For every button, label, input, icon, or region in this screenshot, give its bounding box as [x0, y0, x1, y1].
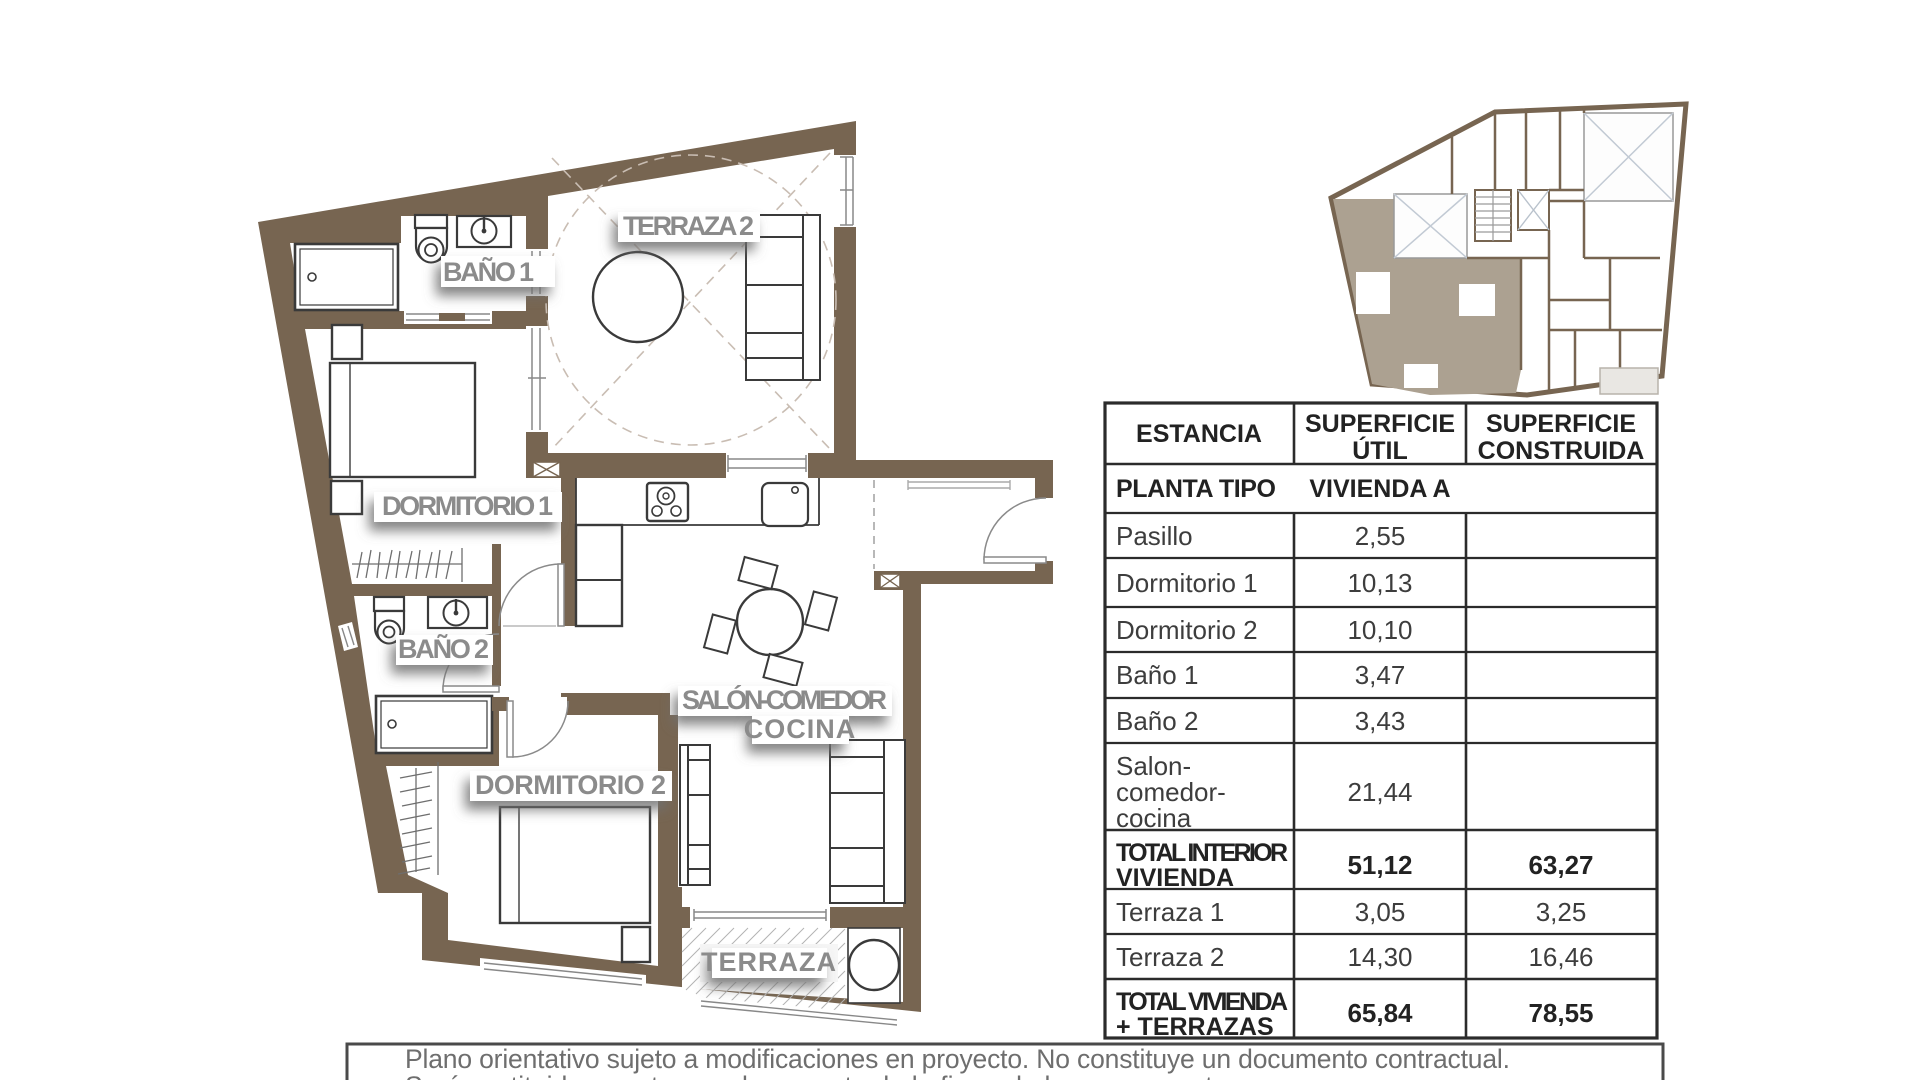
svg-text:Pasillo: Pasillo	[1116, 521, 1193, 551]
svg-text:78,55: 78,55	[1528, 998, 1593, 1028]
svg-text:Terraza 1: Terraza 1	[1116, 897, 1224, 927]
svg-text:2,55: 2,55	[1355, 521, 1406, 551]
svg-text:VIVIENDA: VIVIENDA	[1116, 864, 1234, 892]
svg-text:ÚTIL: ÚTIL	[1352, 435, 1408, 465]
svg-text:Dormitorio 2: Dormitorio 2	[1116, 615, 1258, 645]
svg-text:PLANTA TIPO: PLANTA TIPO	[1116, 475, 1276, 503]
svg-text:14,30: 14,30	[1347, 942, 1412, 972]
svg-text:Baño 1: Baño 1	[1116, 660, 1198, 690]
svg-text:63,27: 63,27	[1528, 850, 1593, 880]
svg-text:CONSTRUIDA: CONSTRUIDA	[1478, 437, 1645, 465]
svg-text:+ TERRAZAS: + TERRAZAS	[1116, 1013, 1274, 1041]
svg-text:Plano orientativo sujeto a mod: Plano orientativo sujeto a modificacione…	[405, 1044, 1510, 1074]
svg-text:cocina: cocina	[1116, 803, 1192, 833]
svg-text:65,84: 65,84	[1347, 998, 1413, 1028]
svg-text:SUPERFICIE: SUPERFICIE	[1305, 410, 1455, 438]
svg-text:COCINA: COCINA	[744, 714, 857, 744]
svg-text:16,46: 16,46	[1528, 942, 1593, 972]
svg-text:3,47: 3,47	[1355, 660, 1406, 690]
svg-text:Dormitorio 1: Dormitorio 1	[1116, 568, 1258, 598]
svg-text:VIVIENDA A: VIVIENDA A	[1309, 475, 1450, 503]
svg-text:3,25: 3,25	[1536, 897, 1587, 927]
svg-text:BAÑO 1: BAÑO 1	[443, 256, 535, 287]
svg-text:3,05: 3,05	[1355, 897, 1406, 927]
svg-text:TOTAL INTERIOR: TOTAL INTERIOR	[1116, 839, 1288, 867]
svg-text:TERRAZA: TERRAZA	[701, 947, 837, 977]
svg-text:BAÑO 2: BAÑO 2	[398, 633, 490, 664]
svg-text:Terraza 2: Terraza 2	[1116, 942, 1224, 972]
svg-text:Será sustituido por otro en el: Será sustituido por otro en el momento d…	[405, 1071, 1235, 1080]
svg-text:DORMITORIO 2: DORMITORIO 2	[475, 770, 667, 800]
svg-text:3,43: 3,43	[1355, 706, 1406, 736]
svg-text:Baño 2: Baño 2	[1116, 706, 1198, 736]
svg-text:ESTANCIA: ESTANCIA	[1136, 420, 1262, 448]
svg-text:TOTAL VIVIENDA: TOTAL VIVIENDA	[1116, 988, 1288, 1016]
svg-text:SALÓN-COMEDOR: SALÓN-COMEDOR	[682, 684, 888, 715]
svg-text:TERRAZA 2: TERRAZA 2	[623, 211, 755, 241]
svg-text:10,10: 10,10	[1347, 615, 1412, 645]
svg-text:51,12: 51,12	[1347, 850, 1412, 880]
svg-text:21,44: 21,44	[1347, 777, 1412, 807]
svg-text:10,13: 10,13	[1347, 568, 1412, 598]
svg-text:SUPERFICIE: SUPERFICIE	[1486, 410, 1636, 438]
svg-text:DORMITORIO 1: DORMITORIO 1	[382, 491, 554, 521]
